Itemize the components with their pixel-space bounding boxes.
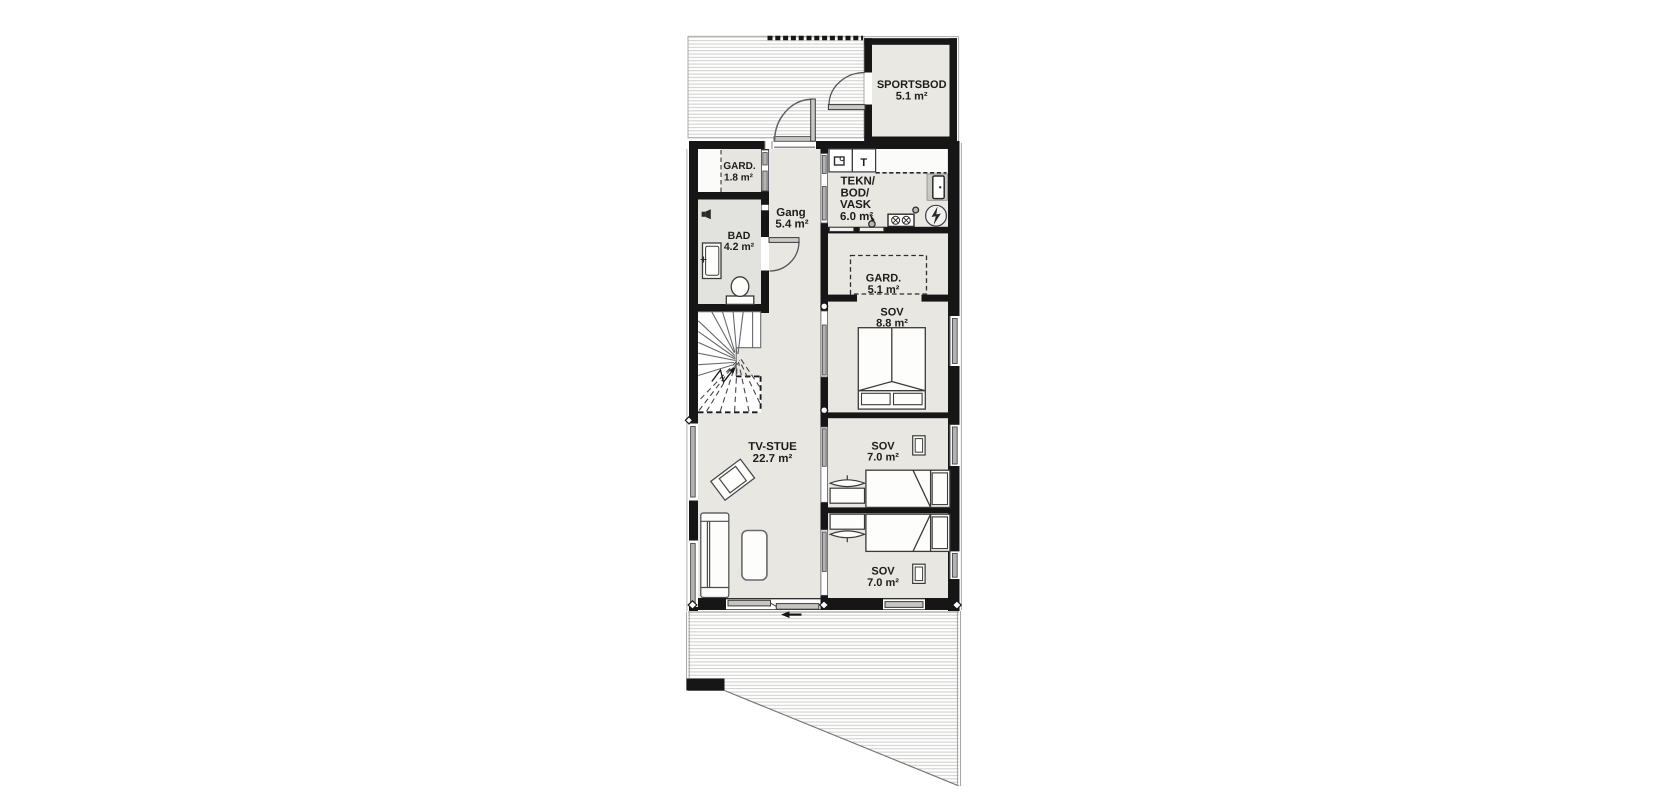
svg-text:5.1 m²: 5.1 m² <box>896 91 928 103</box>
svg-text:SOV: SOV <box>871 440 895 452</box>
svg-text:VASK: VASK <box>840 199 872 211</box>
svg-text:6.0 m²: 6.0 m² <box>840 211 873 223</box>
svg-text:4.2 m²: 4.2 m² <box>724 241 755 253</box>
svg-text:Gang: Gang <box>776 207 805 219</box>
svg-text:5.1 m²: 5.1 m² <box>868 284 900 296</box>
svg-text:7.0 m²: 7.0 m² <box>867 577 899 589</box>
svg-text:TEKN/: TEKN/ <box>841 176 876 188</box>
svg-text:GARD.: GARD. <box>723 161 755 172</box>
svg-text:GARD.: GARD. <box>866 272 901 284</box>
svg-text:TV-STUE: TV-STUE <box>748 441 797 453</box>
svg-text:1.8 m²: 1.8 m² <box>724 173 754 184</box>
svg-text:22.7 m²: 22.7 m² <box>753 453 793 465</box>
svg-text:5.4 m²: 5.4 m² <box>775 219 808 231</box>
svg-text:7.0 m²: 7.0 m² <box>867 452 899 464</box>
svg-text:T: T <box>860 157 867 169</box>
svg-text:SPORTSBOD: SPORTSBOD <box>877 79 947 91</box>
svg-text:BOD/: BOD/ <box>841 187 871 199</box>
